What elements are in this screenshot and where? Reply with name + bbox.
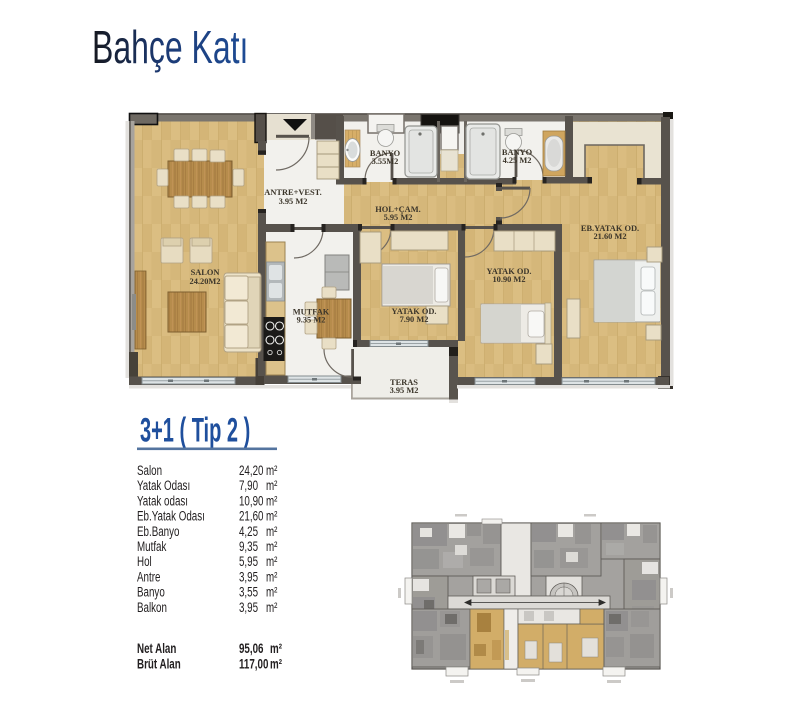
svg-text:m²: m² <box>266 569 277 585</box>
svg-text:21,60: 21,60 <box>239 508 264 524</box>
svg-text:Antre: Antre <box>137 569 161 585</box>
svg-text:SALON: SALON <box>191 268 220 277</box>
svg-text:m²: m² <box>266 508 277 524</box>
svg-text:Bahçe Katı: Bahçe Katı <box>92 22 248 73</box>
svg-text:4,25: 4,25 <box>239 523 258 539</box>
svg-text:Balkon: Balkon <box>137 599 167 615</box>
svg-text:Brüt Alan: Brüt Alan <box>137 656 181 672</box>
svg-text:Mutfak: Mutfak <box>137 538 167 554</box>
svg-text:7,90: 7,90 <box>239 477 258 493</box>
svg-text:3,95: 3,95 <box>239 569 258 585</box>
svg-text:10,90: 10,90 <box>239 493 264 509</box>
svg-text:3,55: 3,55 <box>239 584 258 600</box>
svg-text:3.95 M2: 3.95 M2 <box>390 386 419 395</box>
svg-text:10.90 M2: 10.90 M2 <box>492 275 525 284</box>
svg-text:Yatak odası: Yatak odası <box>137 493 188 509</box>
svg-text:Eb.Yatak Odası: Eb.Yatak Odası <box>137 508 205 524</box>
svg-text:Salon: Salon <box>137 462 162 478</box>
svg-text:21.60 M2: 21.60 M2 <box>593 232 626 241</box>
svg-text:5.95 M2: 5.95 M2 <box>384 213 413 222</box>
svg-text:Net Alan: Net Alan <box>137 640 176 656</box>
svg-text:Banyo: Banyo <box>137 584 165 600</box>
svg-text:3.95 M2: 3.95 M2 <box>279 197 308 206</box>
svg-text:24,20: 24,20 <box>239 462 264 478</box>
svg-text:m²: m² <box>266 599 277 615</box>
svg-text:4.25 M2: 4.25 M2 <box>503 156 532 165</box>
svg-text:Yatak Odası: Yatak Odası <box>137 477 190 493</box>
svg-text:m²: m² <box>266 584 277 600</box>
svg-text:3.55M2: 3.55M2 <box>372 157 399 166</box>
svg-text:117,00: 117,00 <box>239 656 269 672</box>
svg-text:m²: m² <box>266 477 277 493</box>
svg-text:m²: m² <box>266 493 277 509</box>
svg-text:m²: m² <box>270 640 282 656</box>
svg-text:ANTRE+VEST.: ANTRE+VEST. <box>264 188 321 197</box>
svg-text:Hol: Hol <box>137 553 152 569</box>
svg-text:m²: m² <box>266 553 277 569</box>
svg-text:m²: m² <box>270 656 282 672</box>
svg-text:m²: m² <box>266 462 277 478</box>
svg-text:3+1 ( Tip 2 ): 3+1 ( Tip 2 ) <box>140 410 250 449</box>
svg-text:95,06: 95,06 <box>239 640 264 656</box>
svg-text:7.90 M2: 7.90 M2 <box>400 315 429 324</box>
svg-text:9.35 M2: 9.35 M2 <box>297 316 326 325</box>
svg-text:9,35: 9,35 <box>239 538 258 554</box>
svg-text:5,95: 5,95 <box>239 553 258 569</box>
svg-text:Eb.Banyo: Eb.Banyo <box>137 523 180 539</box>
svg-text:3,95: 3,95 <box>239 599 258 615</box>
svg-text:m²: m² <box>266 523 277 539</box>
svg-text:24.20M2: 24.20M2 <box>190 277 221 286</box>
svg-text:m²: m² <box>266 538 277 554</box>
